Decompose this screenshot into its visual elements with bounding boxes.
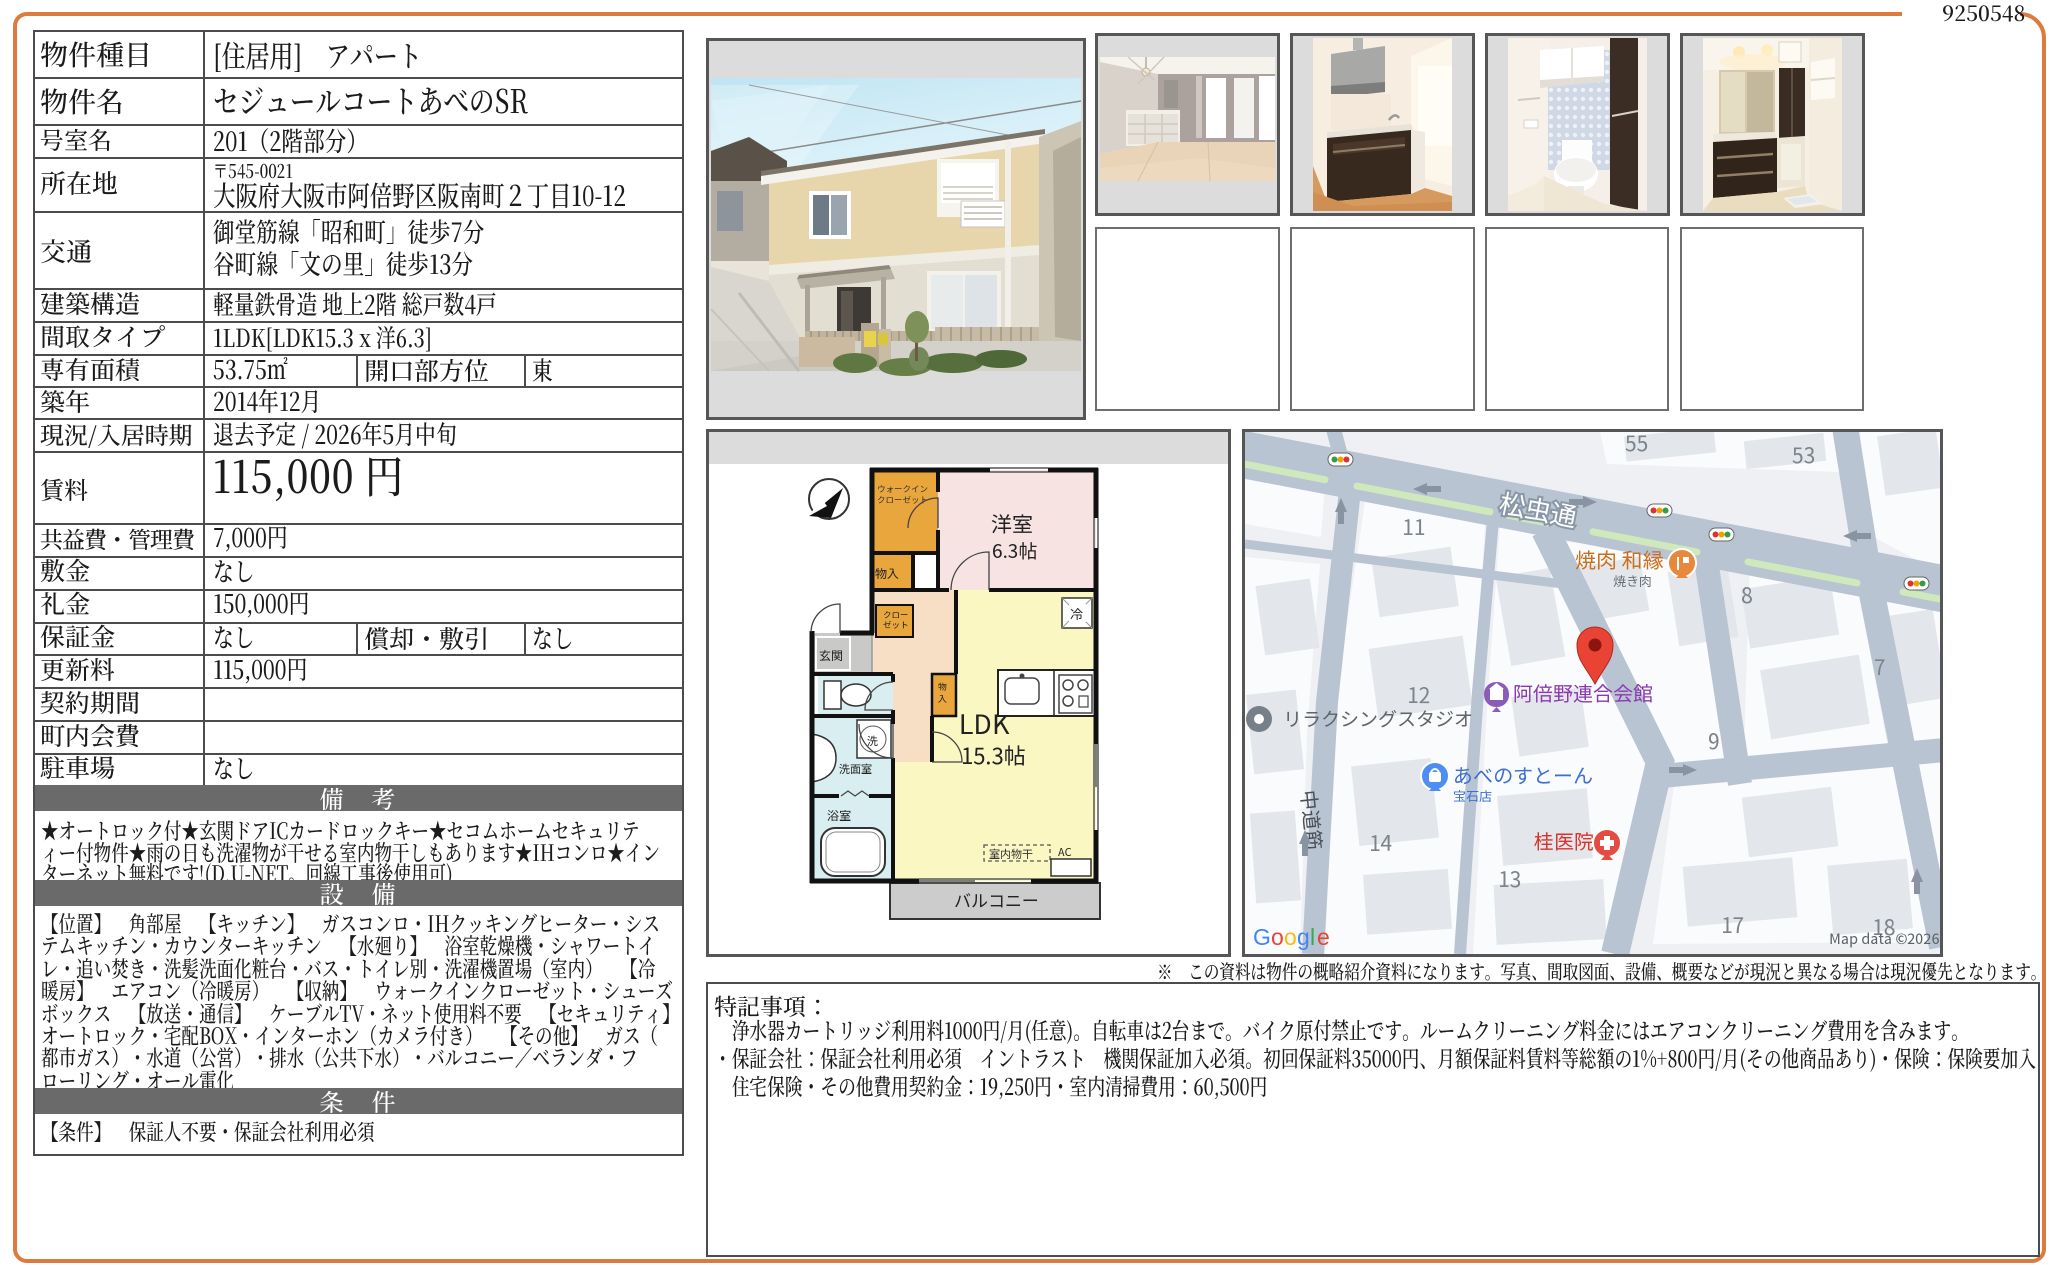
svg-text:55: 55 — [1625, 432, 1648, 458]
svg-text:o: o — [1284, 924, 1297, 950]
svg-text:53: 53 — [1792, 440, 1815, 470]
svg-text:15.3帖: 15.3帖 — [961, 739, 1026, 771]
svg-text:l: l — [1310, 924, 1315, 950]
svg-text:玄関: 玄関 — [819, 647, 843, 664]
svg-text:浴室: 浴室 — [827, 807, 851, 824]
svg-text:G: G — [1253, 924, 1271, 950]
svg-text:ゼット: ゼット — [883, 619, 909, 631]
svg-text:6.3帖: 6.3帖 — [992, 537, 1037, 564]
svg-text:洋室: 洋室 — [991, 509, 1033, 539]
svg-text:桂医院: 桂医院 — [1534, 826, 1594, 855]
svg-text:物入: 物入 — [875, 565, 899, 582]
svg-text:阿倍野連合会館: 阿倍野連合会館 — [1513, 678, 1653, 707]
svg-text:室内物干: 室内物干 — [989, 846, 1033, 862]
svg-text:冷: 冷 — [1070, 604, 1083, 623]
svg-text:13: 13 — [1498, 864, 1521, 894]
svg-text:宝石店: 宝石店 — [1453, 786, 1492, 805]
svg-text:8: 8 — [1741, 580, 1753, 610]
svg-text:AC: AC — [1058, 844, 1072, 860]
svg-text:洗面室: 洗面室 — [839, 761, 872, 777]
svg-text:あべのすとーん: あべのすとーん — [1453, 760, 1593, 789]
svg-text:g: g — [1297, 924, 1310, 950]
svg-text:11: 11 — [1402, 512, 1425, 542]
svg-text:入: 入 — [938, 692, 947, 705]
svg-text:9: 9 — [1708, 726, 1720, 756]
svg-text:17: 17 — [1721, 910, 1744, 940]
svg-text:焼き肉: 焼き肉 — [1613, 571, 1652, 590]
svg-text:リラクシングスタジオ: リラクシングスタジオ — [1283, 705, 1473, 732]
svg-text:o: o — [1271, 924, 1284, 950]
svg-text:7: 7 — [1874, 652, 1886, 682]
svg-text:e: e — [1317, 924, 1330, 950]
svg-text:Map data ©2026: Map data ©2026 — [1829, 928, 1939, 949]
svg-text:バルコニー: バルコニー — [954, 887, 1039, 912]
svg-text:洗: 洗 — [867, 733, 878, 749]
svg-text:14: 14 — [1369, 828, 1393, 858]
